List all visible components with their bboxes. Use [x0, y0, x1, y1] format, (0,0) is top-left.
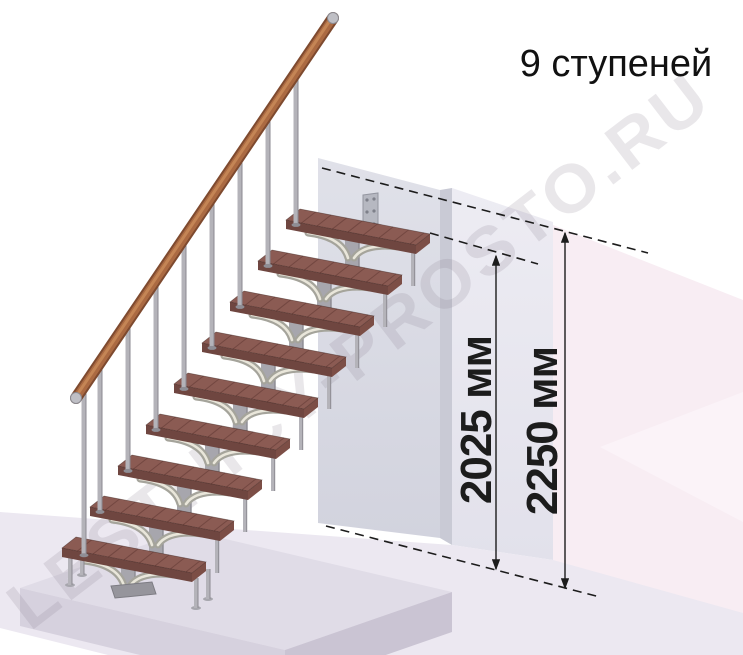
staircase-diagram: LESTNICY-PROSTO.RU 2025 мм 2250 мм 9 сту… — [0, 0, 743, 655]
diagram-title: 9 ступеней — [520, 43, 713, 85]
dimension-label-2025: 2025 мм — [452, 336, 501, 504]
dimension-label-2250: 2250 мм — [518, 347, 567, 515]
handrail-top-cap — [328, 13, 339, 24]
handrail-bottom-cap — [71, 393, 82, 404]
staircase-illustration: LESTNICY-PROSTO.RU 2025 мм 2250 мм 9 сту… — [0, 0, 743, 655]
